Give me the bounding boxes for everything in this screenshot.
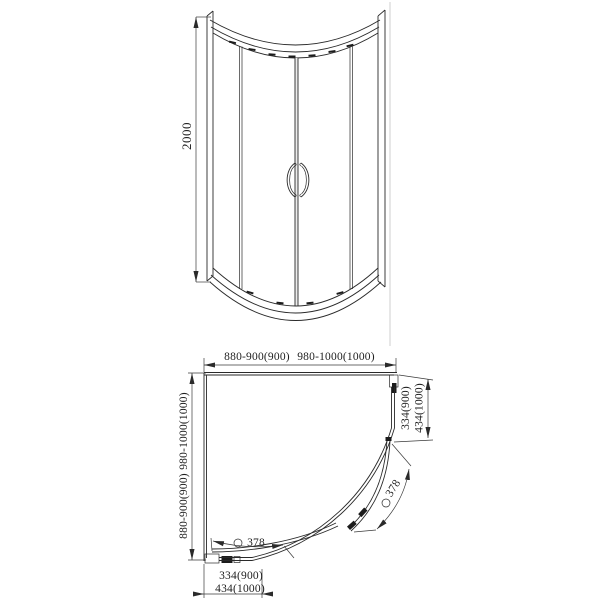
dimension-height-2000: 2000 — [179, 17, 211, 282]
plan-view: 880-900(900) 980-1000(1000) 980-1000(100… — [178, 351, 433, 598]
left-frame-post — [207, 11, 213, 281]
shower-enclosure-drawing: 2000 — [0, 0, 600, 600]
handle-hole — [382, 499, 390, 507]
door-meeting-stiles — [295, 58, 298, 306]
right-side-panel — [390, 375, 399, 428]
dim-door-378-right: 378 — [384, 478, 404, 500]
dimension-door-bottom: 378 — [211, 537, 294, 558]
front-elevation-view: 2000 — [179, 10, 385, 321]
bottom-side-panel — [205, 554, 252, 563]
dimension-bottom-panel: 334(900) 434(1000) — [196, 564, 270, 598]
door-end-clip — [386, 437, 392, 441]
dim-width-900: 880-900(900) — [224, 351, 290, 363]
dimension-right-panel: 334(900) 434(1000) — [394, 375, 433, 442]
dim-height-label: 2000 — [179, 122, 194, 150]
right-door-handle — [300, 163, 309, 197]
right-frame-post — [378, 10, 385, 287]
dim-depth-1000: 980-1000(1000) — [178, 392, 190, 470]
dim-door-378-bottom: 378 — [247, 537, 265, 549]
dim-right-434: 434(1000) — [414, 383, 426, 433]
dim-width-1000: 980-1000(1000) — [297, 351, 375, 363]
top-rail — [210, 20, 380, 58]
sliding-doors — [212, 437, 392, 552]
dim-right-334: 334(900) — [400, 386, 412, 430]
dim-bottom-334: 334(900) — [219, 570, 263, 582]
curved-track — [252, 428, 395, 561]
technical-drawing-page: 2000 — [0, 0, 600, 600]
dim-depth-900: 880-900(900) — [178, 473, 190, 539]
dim-bottom-434: 434(1000) — [215, 583, 265, 595]
dimension-plan-width: 880-900(900) 980-1000(1000) — [204, 351, 396, 372]
dimension-plan-depth: 980-1000(1000) 880-900(900) — [178, 373, 206, 560]
back-wall-edges — [204, 373, 397, 562]
